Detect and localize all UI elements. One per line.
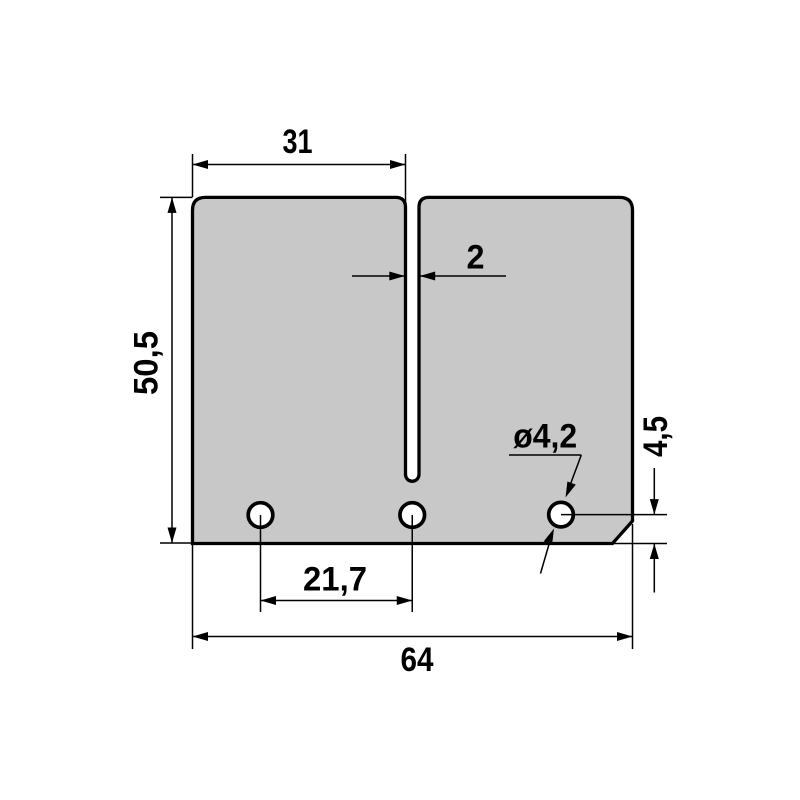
svg-text:4,5: 4,5 (637, 416, 675, 457)
svg-text:ø4,2: ø4,2 (513, 418, 577, 456)
svg-text:64: 64 (401, 641, 434, 679)
svg-text:2: 2 (467, 239, 485, 277)
svg-text:31: 31 (283, 123, 313, 161)
svg-text:50,5: 50,5 (128, 331, 166, 395)
svg-text:21,7: 21,7 (303, 561, 367, 599)
